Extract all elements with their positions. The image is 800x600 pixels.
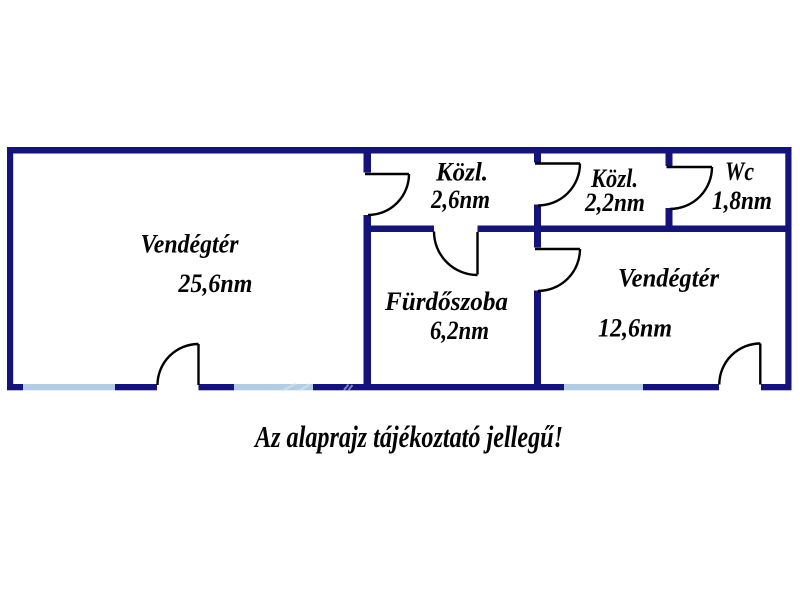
svg-text:Fürdőszoba: Fürdőszoba bbox=[384, 286, 508, 316]
svg-text:6,2nm: 6,2nm bbox=[430, 315, 489, 345]
svg-text:Közl.: Közl. bbox=[435, 157, 488, 187]
svg-text:Vendégtér: Vendégtér bbox=[618, 262, 720, 292]
svg-text:Vendégtér: Vendégtér bbox=[141, 228, 240, 258]
svg-text:25,6nm: 25,6nm bbox=[177, 268, 252, 298]
svg-text:Az alaprajz tájékoztató jelleg: Az alaprajz tájékoztató jellegű! bbox=[253, 420, 563, 454]
svg-text:2,6nm: 2,6nm bbox=[430, 184, 490, 214]
svg-text:2,2nm: 2,2nm bbox=[584, 187, 645, 217]
svg-text:Wc: Wc bbox=[725, 156, 754, 186]
svg-text:1,8nm: 1,8nm bbox=[712, 185, 772, 215]
svg-text:12,6nm: 12,6nm bbox=[598, 312, 672, 342]
